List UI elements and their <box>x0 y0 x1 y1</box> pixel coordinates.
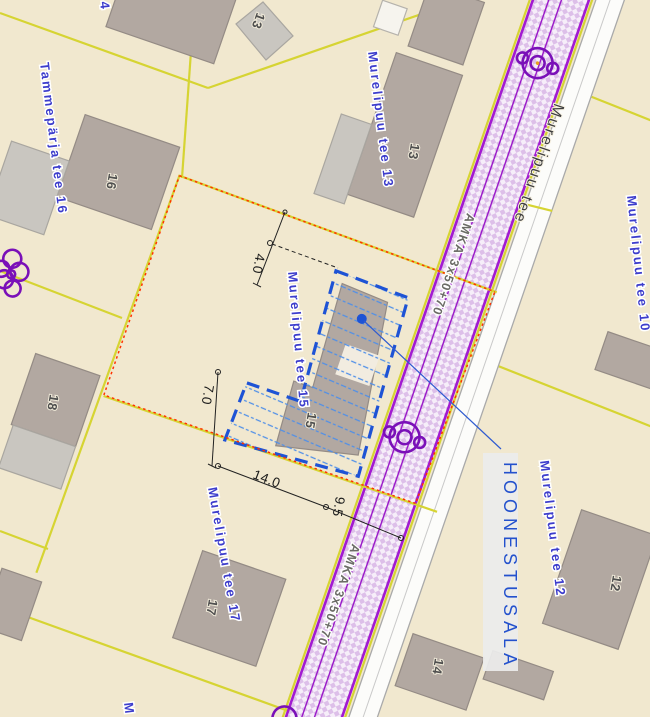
number-17: 17 <box>203 598 221 617</box>
number-18: 18 <box>44 393 62 412</box>
label-partial-top: 4 <box>97 1 113 12</box>
map-view[interactable]: AMKA 3x50+70 AMKA 3x50+70 Murelipuu tee … <box>0 0 650 717</box>
number-13: 13 <box>405 142 423 161</box>
number-16: 16 <box>103 172 121 191</box>
number-15: 15 <box>302 411 320 430</box>
number-14: 14 <box>429 657 447 676</box>
map-canvas: AMKA 3x50+70 AMKA 3x50+70 Murelipuu tee … <box>0 0 650 717</box>
annotation-text: HOONESTUSALA <box>500 462 520 670</box>
label-partial-bottom: M <box>121 702 137 717</box>
number-12: 12 <box>607 574 625 593</box>
